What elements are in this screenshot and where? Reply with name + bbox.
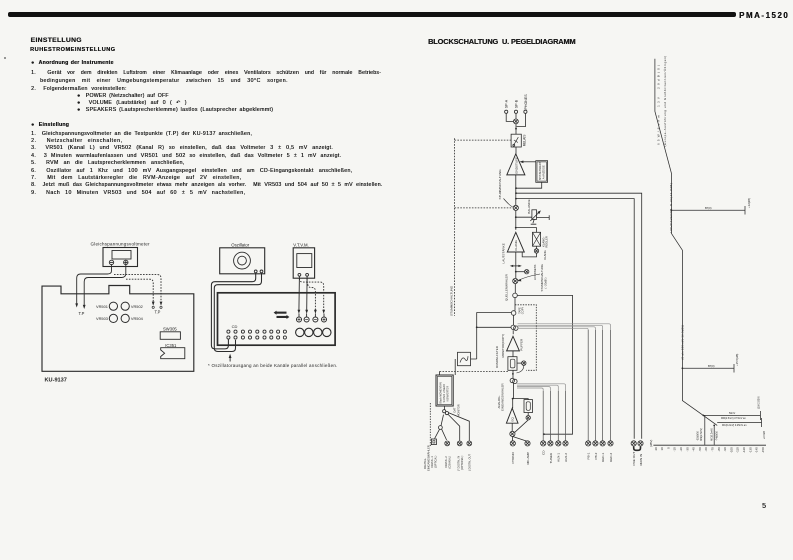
svg-text:(COAXIAL): (COAXIAL) (448, 456, 451, 469)
svg-text:(1W 2.83V): (1W 2.83V) (757, 396, 760, 409)
svg-text:SP-B: SP-B (514, 99, 518, 108)
svg-text:AUX-2: AUX-2 (564, 453, 568, 462)
svg-text:ENDSTUFE: ENDSTUFE (514, 157, 518, 174)
svg-text:Oszillator: Oszillator (231, 242, 249, 247)
svg-text:CD: CD (232, 324, 238, 329)
svg-text:PUFFER: PUFFER (520, 338, 524, 351)
svg-text:-140: -140 (755, 447, 759, 453)
svg-text:50mV: 50mV (729, 412, 736, 415)
svg-text:-30: -30 (685, 447, 689, 452)
svg-text:V.T.V.M.: V.T.V.M. (293, 242, 308, 247)
svg-text:-52dB(V): -52dB(V) (696, 431, 699, 441)
svg-text:PHONO: PHONO (511, 452, 515, 464)
svg-text:+12(dB): +12(dB) (747, 198, 751, 208)
svg-text:RUMPELFILTER: RUMPELFILTER (495, 346, 499, 368)
svg-text:KLANG: KLANG (543, 250, 547, 259)
svg-text:HAUPTVERST. N 31(31.8dB): HAUPTVERST. N 31(31.8dB) (669, 183, 673, 233)
svg-text:-130: -130 (748, 447, 752, 453)
svg-text:(dBV): (dBV) (649, 440, 653, 447)
svg-text:COPY: COPY (521, 307, 525, 315)
svg-text:EQ: EQ (511, 416, 515, 421)
svg-text:MC(0.2mV): MC(0.2mV) (710, 428, 713, 441)
svg-text:CD: CD (542, 450, 546, 455)
svg-text:KONVERTER: KONVERTER (446, 386, 449, 402)
svg-text:REC-2: REC-2 (609, 452, 613, 462)
svg-text:0: 0 (666, 447, 670, 449)
svg-text:-90: -90 (723, 447, 727, 452)
svg-text:(OPTIONAL): (OPTIONAL) (461, 456, 464, 470)
svg-text:VR501: VR501 (96, 304, 108, 309)
svg-text:(OPTICAL): (OPTICAL) (435, 455, 438, 468)
svg-text:MM(2.5mV): MM(2.5mV) (700, 428, 703, 441)
svg-text:SP-A: SP-A (505, 99, 509, 108)
svg-text:MM(2.5mV) 47.5mV an: MM(2.5mV) 47.5mV an (721, 417, 746, 420)
svg-text:MONITOR(COPY): MONITOR(COPY) (501, 334, 505, 358)
svg-text:-74dB(V): -74dB(V) (715, 431, 718, 441)
svg-text:EINGANGSWÄHLER: EINGANGSWÄHLER (427, 445, 431, 471)
svg-text:SW305: SW305 (163, 327, 177, 332)
svg-text:( -20dB ): ( -20dB ) (544, 278, 548, 289)
svg-text:STUMMSCHALTUNG: STUMMSCHALTUNG (450, 285, 454, 316)
svg-text:LOUDNESS: LOUDNESS (533, 264, 537, 280)
svg-text:-10: -10 (673, 447, 677, 452)
svg-text:20: 20 (654, 447, 658, 451)
svg-text:KLANG: KLANG (514, 240, 518, 251)
svg-text:-120: -120 (742, 447, 746, 453)
svg-text:SPITZENWERT: SPITZENWERT (538, 161, 542, 180)
svg-text:-150: -150 (761, 447, 765, 453)
svg-text:PRE OUT: PRE OUT (632, 452, 636, 466)
svg-text:(0 als 150mV(-16.5dB)): (0 als 150mV(-16.5dB)) (680, 325, 684, 360)
svg-text:TUNER: TUNER (549, 452, 553, 463)
svg-text:KU-9137: KU-9137 (45, 378, 67, 384)
svg-text:REC-1: REC-1 (601, 452, 605, 462)
svg-text:T.P: T.P (155, 310, 161, 315)
svg-text:-100: -100 (729, 447, 733, 453)
svg-text:-20: -20 (679, 447, 683, 452)
svg-text:-40: -40 (692, 447, 696, 452)
svg-text:MC(0.2mV) 0.25mV an: MC(0.2mV) 0.25mV an (722, 424, 747, 427)
svg-text:-110: -110 (736, 447, 740, 453)
svg-text:(Europa-Ausführung und Großbri: (Europa-Ausführung und Großbritannien/Üb… (663, 55, 667, 146)
svg-text:DIGITAL-: DIGITAL- (423, 458, 427, 469)
svg-text:LAUTSTÄRKE: LAUTSTÄRKE (501, 243, 505, 263)
svg-text:* Oszillatorausgang an beide K: * Oszillatorausgang an beide Kanäle para… (208, 363, 338, 368)
svg-text:REGLER: REGLER (545, 236, 549, 248)
svg-text:QUELLENWÄHLER: QUELLENWÄHLER (505, 273, 509, 301)
svg-text:VR504: VR504 (131, 316, 144, 321)
svg-text:-80: -80 (717, 447, 721, 452)
svg-text:-70: -70 (711, 447, 715, 452)
svg-text:BALANCE: BALANCE (527, 199, 531, 213)
svg-text:T.P: T.P (79, 311, 85, 316)
svg-text:PHONES: PHONES (524, 94, 528, 110)
svg-text:MONITOR: MONITOR (456, 404, 460, 416)
svg-text:+0.5dB: +0.5dB (763, 431, 766, 439)
svg-text:PB-1: PB-1 (587, 452, 591, 459)
svg-text:MAIN IN: MAIN IN (639, 454, 643, 466)
svg-text:AUX-1: AUX-1 (557, 453, 561, 462)
svg-text:RELAIS: RELAIS (522, 134, 526, 147)
svg-text:DAT: DAT (453, 407, 457, 412)
svg-text:10: 10 (660, 447, 664, 451)
svg-text:65W/8ohm 13V 29dB(0): 65W/8ohm 13V 29dB(0) (656, 63, 660, 145)
svg-text:+15.5(dB): +15.5(dB) (735, 354, 739, 366)
svg-text:PB-2: PB-2 (594, 452, 598, 459)
svg-text:Gleichspannungsvoltmeter: Gleichspannungsvoltmeter (91, 242, 151, 247)
svg-text:( DIGITAL OUT: ( DIGITAL OUT (469, 454, 472, 471)
svg-text:B7(0): B7(0) (708, 364, 715, 368)
svg-text:A-ANZEIGE: A-ANZEIGE (542, 165, 546, 179)
svg-text:EINGANGSWÄHLER: EINGANGSWÄHLER (501, 383, 505, 411)
svg-text:-60: -60 (704, 447, 708, 452)
svg-text:-50: -50 (698, 447, 702, 452)
svg-text:B7(0): B7(0) (705, 206, 712, 210)
svg-text:MC-AMP: MC-AMP (526, 452, 530, 465)
svg-text:VR503: VR503 (96, 316, 108, 321)
svg-text:VR502: VR502 (131, 304, 143, 309)
svg-text:STUMMSCHALTUNG: STUMMSCHALTUNG (498, 169, 502, 200)
